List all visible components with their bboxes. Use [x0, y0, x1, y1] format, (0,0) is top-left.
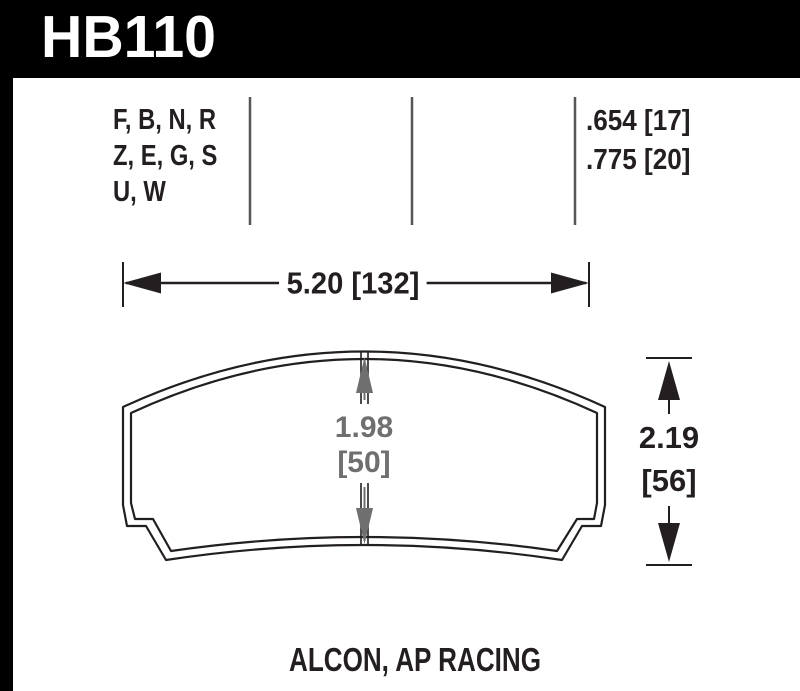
compound-codes-line: U, W	[113, 174, 217, 210]
arrowhead-down-icon	[658, 523, 680, 562]
pad-thickness-values: .654 [17] .775 [20]	[586, 102, 690, 180]
compound-codes-line: F, B, N, R	[113, 102, 217, 138]
inner-height-value: 1.98	[335, 410, 393, 445]
inner-height-dimension-label: 1.98 [50]	[330, 408, 398, 482]
overall-height-value: 2.19	[639, 416, 699, 459]
arrowhead-up-icon	[658, 361, 680, 400]
arrowhead-down-icon	[356, 508, 373, 544]
overall-height-metric: [56]	[639, 459, 699, 502]
compound-codes: F, B, N, R Z, E, G, S U, W	[113, 102, 217, 210]
arrowhead-left-icon	[123, 273, 161, 294]
overall-height-dimension-label: 2.19 [56]	[639, 416, 699, 502]
arrowhead-up-icon	[356, 357, 373, 393]
arrowhead-right-icon	[551, 273, 589, 294]
pad-thickness-line: .654 [17]	[586, 102, 690, 141]
spec-table-dividers	[250, 97, 575, 225]
compound-codes-line: Z, E, G, S	[113, 138, 217, 174]
catalog-page: HB110	[0, 0, 800, 691]
pad-thickness-line: .775 [20]	[586, 141, 690, 180]
inner-height-metric: [50]	[335, 445, 393, 480]
width-dimension-label: 5.20 [132]	[279, 268, 427, 299]
applications-text: ALCON, AP RACING	[289, 641, 541, 679]
